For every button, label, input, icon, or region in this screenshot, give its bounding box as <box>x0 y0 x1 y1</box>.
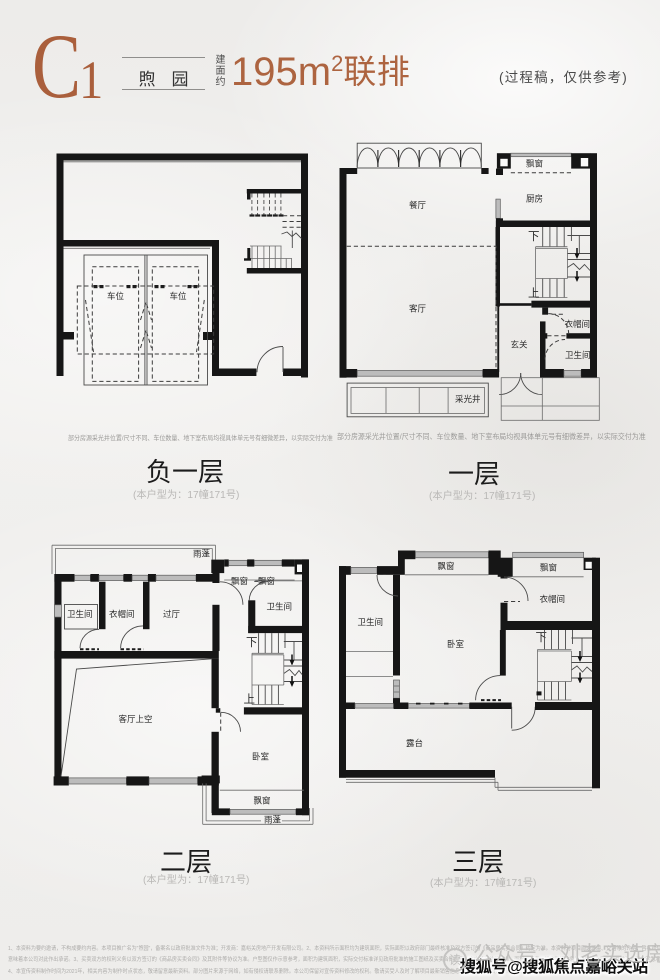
svg-text:雨蓬: 雨蓬 <box>264 815 282 825</box>
svg-text:上: 上 <box>244 693 256 706</box>
svg-text:衣帽间: 衣帽间 <box>565 319 591 329</box>
svg-text:车位: 车位 <box>107 291 125 301</box>
svg-text:雨蓬: 雨蓬 <box>193 549 211 559</box>
svg-text:下: 下 <box>536 632 548 644</box>
svg-text:卧室: 卧室 <box>252 752 270 762</box>
svg-text:飘窗: 飘窗 <box>540 563 557 573</box>
svg-text:餐厅: 餐厅 <box>409 200 427 210</box>
svg-text:衣帽间: 衣帽间 <box>540 594 566 604</box>
svg-text:客厅: 客厅 <box>409 304 427 314</box>
svg-text:露台: 露台 <box>406 738 423 748</box>
svg-text:飘窗: 飘窗 <box>526 159 543 169</box>
svg-text:下: 下 <box>528 231 540 243</box>
svg-text:过厅: 过厅 <box>163 609 181 619</box>
svg-text:卫生间: 卫生间 <box>565 350 591 360</box>
svg-text:上: 上 <box>528 287 540 300</box>
svg-text:飘窗: 飘窗 <box>231 576 248 586</box>
svg-text:采光井: 采光井 <box>455 394 481 404</box>
svg-text:客厅上空: 客厅上空 <box>119 714 153 724</box>
svg-text:车位: 车位 <box>170 291 188 301</box>
svg-text:厨房: 厨房 <box>526 194 543 204</box>
svg-text:飘窗: 飘窗 <box>438 561 455 571</box>
svg-text:卫生间: 卫生间 <box>67 609 93 619</box>
svg-text:玄关: 玄关 <box>511 340 529 350</box>
svg-text:卫生间: 卫生间 <box>267 602 293 612</box>
svg-text:卧室: 卧室 <box>447 639 465 649</box>
svg-text:下: 下 <box>246 637 258 649</box>
svg-text:卫生间: 卫生间 <box>358 617 384 627</box>
svg-text:衣帽间: 衣帽间 <box>109 609 135 619</box>
svg-text:飘窗: 飘窗 <box>254 796 271 806</box>
